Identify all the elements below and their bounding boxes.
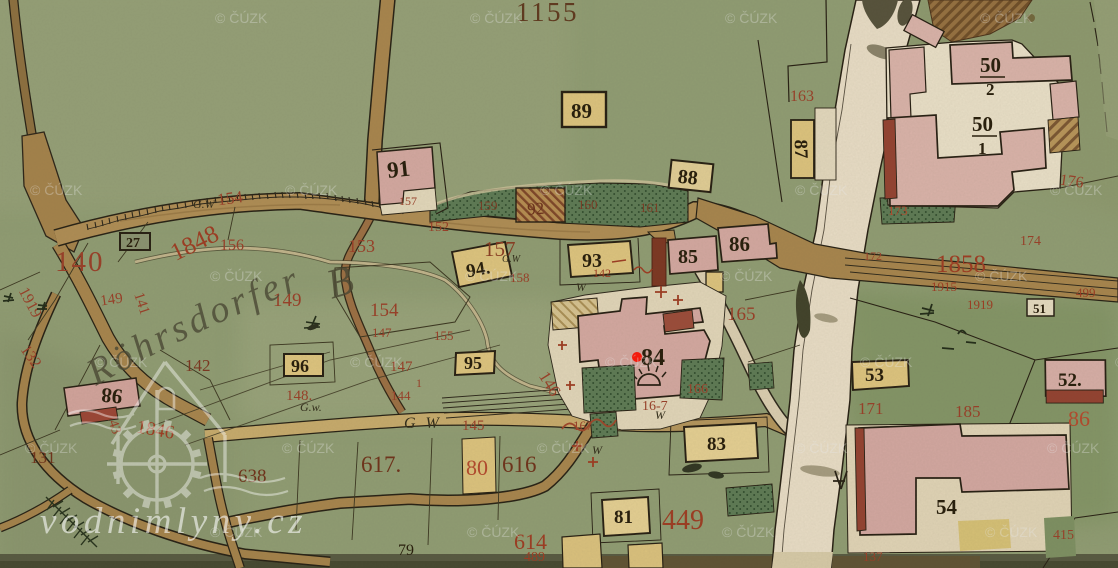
svg-text:© ČÚZK: © ČÚZK	[605, 354, 658, 370]
svg-text:© ČÚZK: © ČÚZK	[720, 268, 773, 284]
svg-text:© ČÚZK: © ČÚZK	[725, 10, 778, 26]
svg-text:© ČÚZK: © ČÚZK	[30, 182, 83, 198]
svg-text:© ČÚZK: © ČÚZK	[860, 354, 913, 370]
svg-text:© ČÚZK: © ČÚZK	[215, 10, 268, 26]
svg-text:© ČÚZK: © ČÚZK	[795, 182, 848, 198]
svg-text:© ČÚZK: © ČÚZK	[540, 182, 593, 198]
svg-text:© ČÚZK: © ČÚZK	[285, 182, 338, 198]
svg-text:© ČÚZK: © ČÚZK	[470, 10, 523, 26]
svg-text:© ČÚZK: © ČÚZK	[975, 268, 1028, 284]
svg-text:vodnimlyny.cz: vodnimlyny.cz	[40, 501, 307, 542]
svg-text:© ČÚZK: © ČÚZK	[350, 354, 403, 370]
svg-text:© ČÚZK: © ČÚZK	[465, 268, 518, 284]
svg-text:© ČÚZK: © ČÚZK	[795, 440, 848, 456]
svg-text:© ČÚZK: © ČÚZK	[985, 524, 1038, 540]
svg-text:© ČÚZK: © ČÚZK	[980, 10, 1033, 26]
svg-text:© ČÚZK: © ČÚZK	[722, 524, 775, 540]
svg-text:© ČÚZK: © ČÚZK	[537, 440, 590, 456]
svg-text:© ČÚZK: © ČÚZK	[1047, 440, 1100, 456]
svg-text:© ČÚZK: © ČÚZK	[1050, 182, 1103, 198]
svg-text:© ČÚZK: © ČÚZK	[25, 440, 78, 456]
svg-text:© ČÚZK: © ČÚZK	[95, 354, 148, 370]
svg-text:© ČÚZK: © ČÚZK	[210, 268, 263, 284]
svg-text:© ČÚZK: © ČÚZK	[282, 440, 335, 456]
svg-text:© ČÚZK: © ČÚZK	[467, 524, 520, 540]
